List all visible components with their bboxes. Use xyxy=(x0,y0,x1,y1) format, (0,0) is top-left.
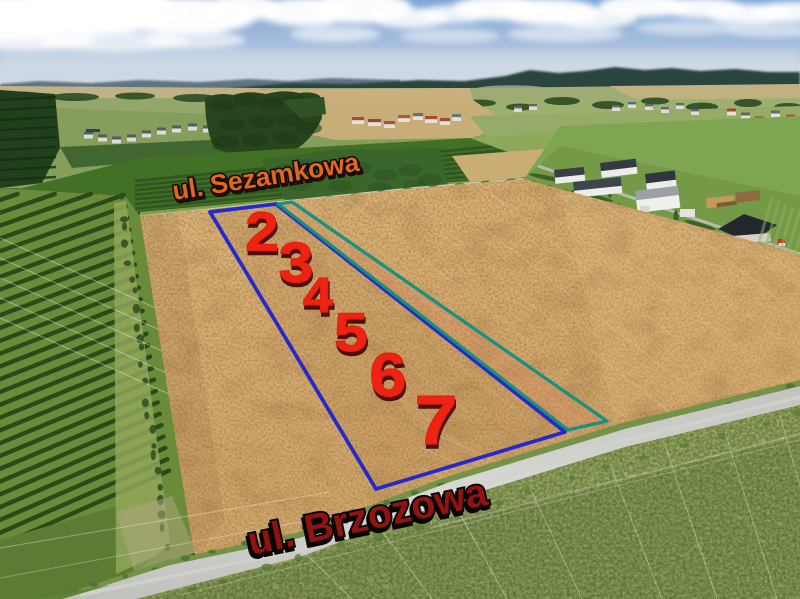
svg-text:5: 5 xyxy=(334,302,368,363)
svg-text:7: 7 xyxy=(415,380,458,459)
svg-text:4: 4 xyxy=(303,267,333,322)
svg-text:6: 6 xyxy=(369,341,406,409)
svg-text:2: 2 xyxy=(245,202,279,263)
